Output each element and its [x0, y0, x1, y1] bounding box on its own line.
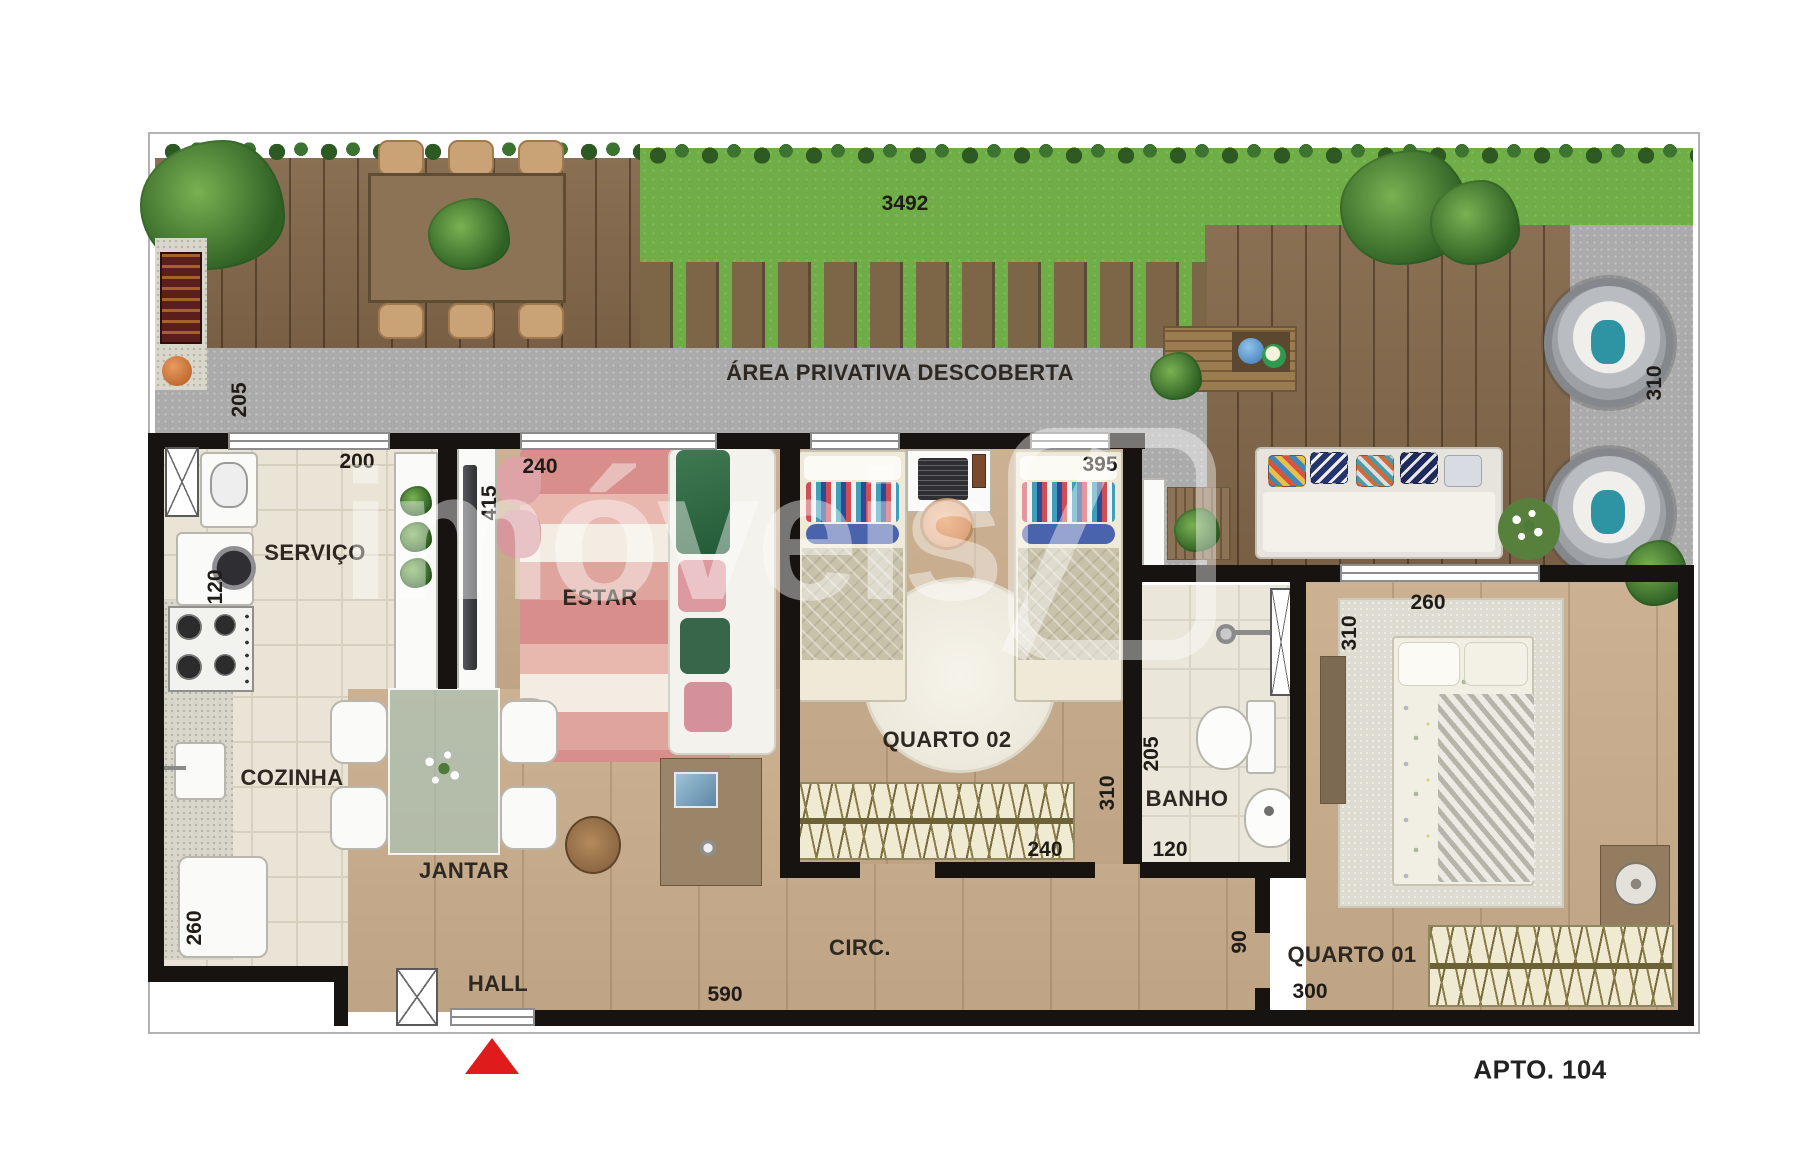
shelf-plant — [400, 558, 432, 588]
sink-faucet-dot — [1264, 806, 1274, 816]
wall-circ-end-top — [1255, 878, 1270, 933]
duct-shaft — [165, 447, 199, 517]
bed2-zigzag-pillow — [1022, 482, 1115, 522]
sofa-pillow-multicolor — [1268, 455, 1306, 487]
outdoor-chair — [518, 303, 564, 339]
entrance-marker — [465, 1038, 519, 1074]
cooktop-knobs — [242, 610, 252, 688]
dining-chair — [500, 786, 558, 850]
dim-balcony: 395 — [1082, 453, 1117, 477]
wall-bottom-left — [148, 966, 348, 982]
sofa-throw-green — [676, 450, 730, 554]
wall-balcony-g — [1540, 565, 1678, 582]
dim-quarto01-top: 260 — [1410, 591, 1445, 615]
servico-window — [228, 432, 390, 450]
sofa-pillow-multicolor — [1356, 455, 1394, 487]
wall-estar-divider — [438, 449, 457, 689]
dim-servico-top: 200 — [339, 450, 374, 474]
apartment-number: APTO. 104 — [1473, 1055, 1606, 1086]
sofa-pillow-navy — [1400, 452, 1438, 484]
estar-pouf — [497, 510, 541, 558]
floor-plan-page: { "plan": { "outdoor": { "area_label": "… — [0, 0, 1800, 1165]
tray-bowl-green — [1262, 344, 1286, 368]
outdoor-sofa-seat — [1263, 492, 1495, 552]
dim-garden: 3492 — [882, 192, 929, 216]
estar-sliding-door — [520, 432, 717, 450]
dim-quarto01-bottom: 300 — [1292, 980, 1327, 1004]
room-label-quarto01: QUARTO 01 — [1287, 942, 1416, 968]
dining-chair — [500, 700, 558, 764]
tv-panel — [463, 465, 477, 670]
dim-quarto02-side: 310 — [1096, 775, 1120, 810]
dim-circ-door: 90 — [1228, 930, 1252, 953]
outdoor-chair — [448, 303, 494, 339]
dim-cozinha: 260 — [183, 910, 207, 945]
sofa-cushion-pink — [678, 560, 726, 612]
shelf-plant — [400, 486, 432, 516]
dim-path: 205 — [228, 382, 252, 417]
outdoor-chair — [378, 140, 424, 176]
bed-throw-blanket — [1438, 694, 1534, 882]
area-privativa-label: ÁREA PRIVATIVA DESCOBERTA — [726, 360, 1074, 386]
quarto01-dresser — [1320, 656, 1346, 804]
shower-door — [1270, 588, 1292, 696]
kitchen-sink — [174, 742, 226, 800]
dim-servico-nook: 120 — [204, 569, 228, 604]
wall-mid-bottom-j — [1140, 862, 1306, 878]
wall-banho-right — [1290, 582, 1306, 864]
dim-circ-length: 590 — [707, 983, 742, 1007]
quarto01-sliding-door — [1340, 564, 1540, 582]
outdoor-chair — [378, 303, 424, 339]
room-label-servico: SERVIÇO — [264, 540, 365, 566]
dim-outdoor-right: 310 — [1643, 365, 1667, 400]
wall-balcony-f — [1142, 565, 1340, 582]
dining-flowers — [408, 738, 480, 806]
cooktop-burner — [214, 654, 236, 676]
wall-top-e — [1110, 433, 1145, 449]
bed1-quilt — [802, 548, 903, 660]
entrance-door — [450, 1008, 535, 1026]
wall-bottom-main — [535, 1010, 1678, 1026]
wall-step-vertical — [334, 966, 348, 1026]
room-label-jantar: JANTAR — [419, 858, 509, 884]
cooktop-burner — [214, 614, 236, 636]
bed1-zigzag-pillow — [806, 482, 899, 522]
toilet-bowl — [1196, 706, 1252, 770]
desk-chair — [920, 498, 974, 550]
wall-quarto02-left — [780, 449, 800, 864]
cooktop-burner — [176, 654, 202, 680]
laptop — [918, 458, 968, 500]
sofa-cushion-green — [680, 618, 730, 674]
dim-banho-side: 205 — [1140, 736, 1164, 771]
room-label-circ: CIRC. — [829, 935, 891, 961]
outdoor-chair — [518, 140, 564, 176]
room-label-cozinha: COZINHA — [240, 765, 343, 791]
bed2-bolster — [1022, 524, 1115, 544]
room-label-hall: HALL — [468, 971, 528, 997]
console-knob — [700, 840, 716, 856]
wall-top-c — [717, 433, 810, 449]
wall-mid-bottom-h — [780, 862, 860, 878]
laundry-tank-basin — [210, 462, 248, 508]
desk-chair-wood — [565, 816, 621, 874]
coffee-table-plant — [1150, 352, 1202, 400]
wardrobe-quarto01 — [1428, 925, 1674, 1007]
outdoor-chair — [448, 140, 494, 176]
cooktop-burner — [176, 614, 202, 640]
dim-estar-side: 415 — [478, 485, 502, 520]
deck-plank-strips — [640, 262, 1207, 348]
dim-banho-bottom: 120 — [1152, 838, 1187, 862]
table-centerpiece-plant — [428, 198, 510, 270]
balcony-flower-pot — [1498, 498, 1560, 560]
wall-left — [148, 433, 164, 982]
room-label-quarto02: QUARTO 02 — [882, 727, 1011, 753]
bed2-quilt — [1018, 548, 1119, 660]
desk-accessory — [972, 454, 986, 488]
table-lamp — [1614, 862, 1658, 906]
hedge-row — [640, 138, 1693, 170]
sofa-pillow-light — [1444, 455, 1482, 487]
dining-chair — [330, 786, 388, 850]
balcony-divider-panel — [1142, 478, 1166, 576]
bed1-bolster — [806, 524, 899, 544]
room-label-banho: BANHO — [1146, 786, 1229, 812]
bed-pillow-left — [1398, 642, 1460, 686]
wall-mid-bottom-i — [935, 862, 1095, 878]
wall-right — [1678, 565, 1694, 1026]
sofa-cushion-pink — [684, 682, 732, 732]
sofa-pillow-navy — [1310, 452, 1348, 484]
dim-estar-top: 240 — [522, 455, 557, 479]
quarto02-window-1 — [810, 432, 900, 450]
barbecue-grill — [160, 252, 202, 344]
console-art — [674, 772, 718, 808]
shelf-plant — [400, 522, 432, 552]
dining-chair — [330, 700, 388, 764]
tray-bowl-blue — [1238, 338, 1264, 364]
dim-quarto02-bottom: 240 — [1027, 838, 1062, 862]
palm-plant-top-right-2 — [1430, 180, 1520, 265]
clay-pot — [162, 356, 192, 386]
room-label-estar: ESTAR — [563, 585, 638, 611]
quarto02-window-2 — [1030, 432, 1110, 450]
wall-top-b — [390, 433, 520, 449]
dim-quarto01-side: 310 — [1338, 615, 1362, 650]
wall-quarto02-right — [1123, 449, 1142, 864]
wall-top-d — [900, 433, 1030, 449]
bed-pillow-right — [1464, 642, 1528, 686]
wall-circ-end-bottom — [1255, 988, 1270, 1012]
elevator-shaft — [396, 968, 438, 1026]
bed1-pillow — [804, 456, 901, 480]
balcony-bench-plant — [1174, 508, 1220, 552]
